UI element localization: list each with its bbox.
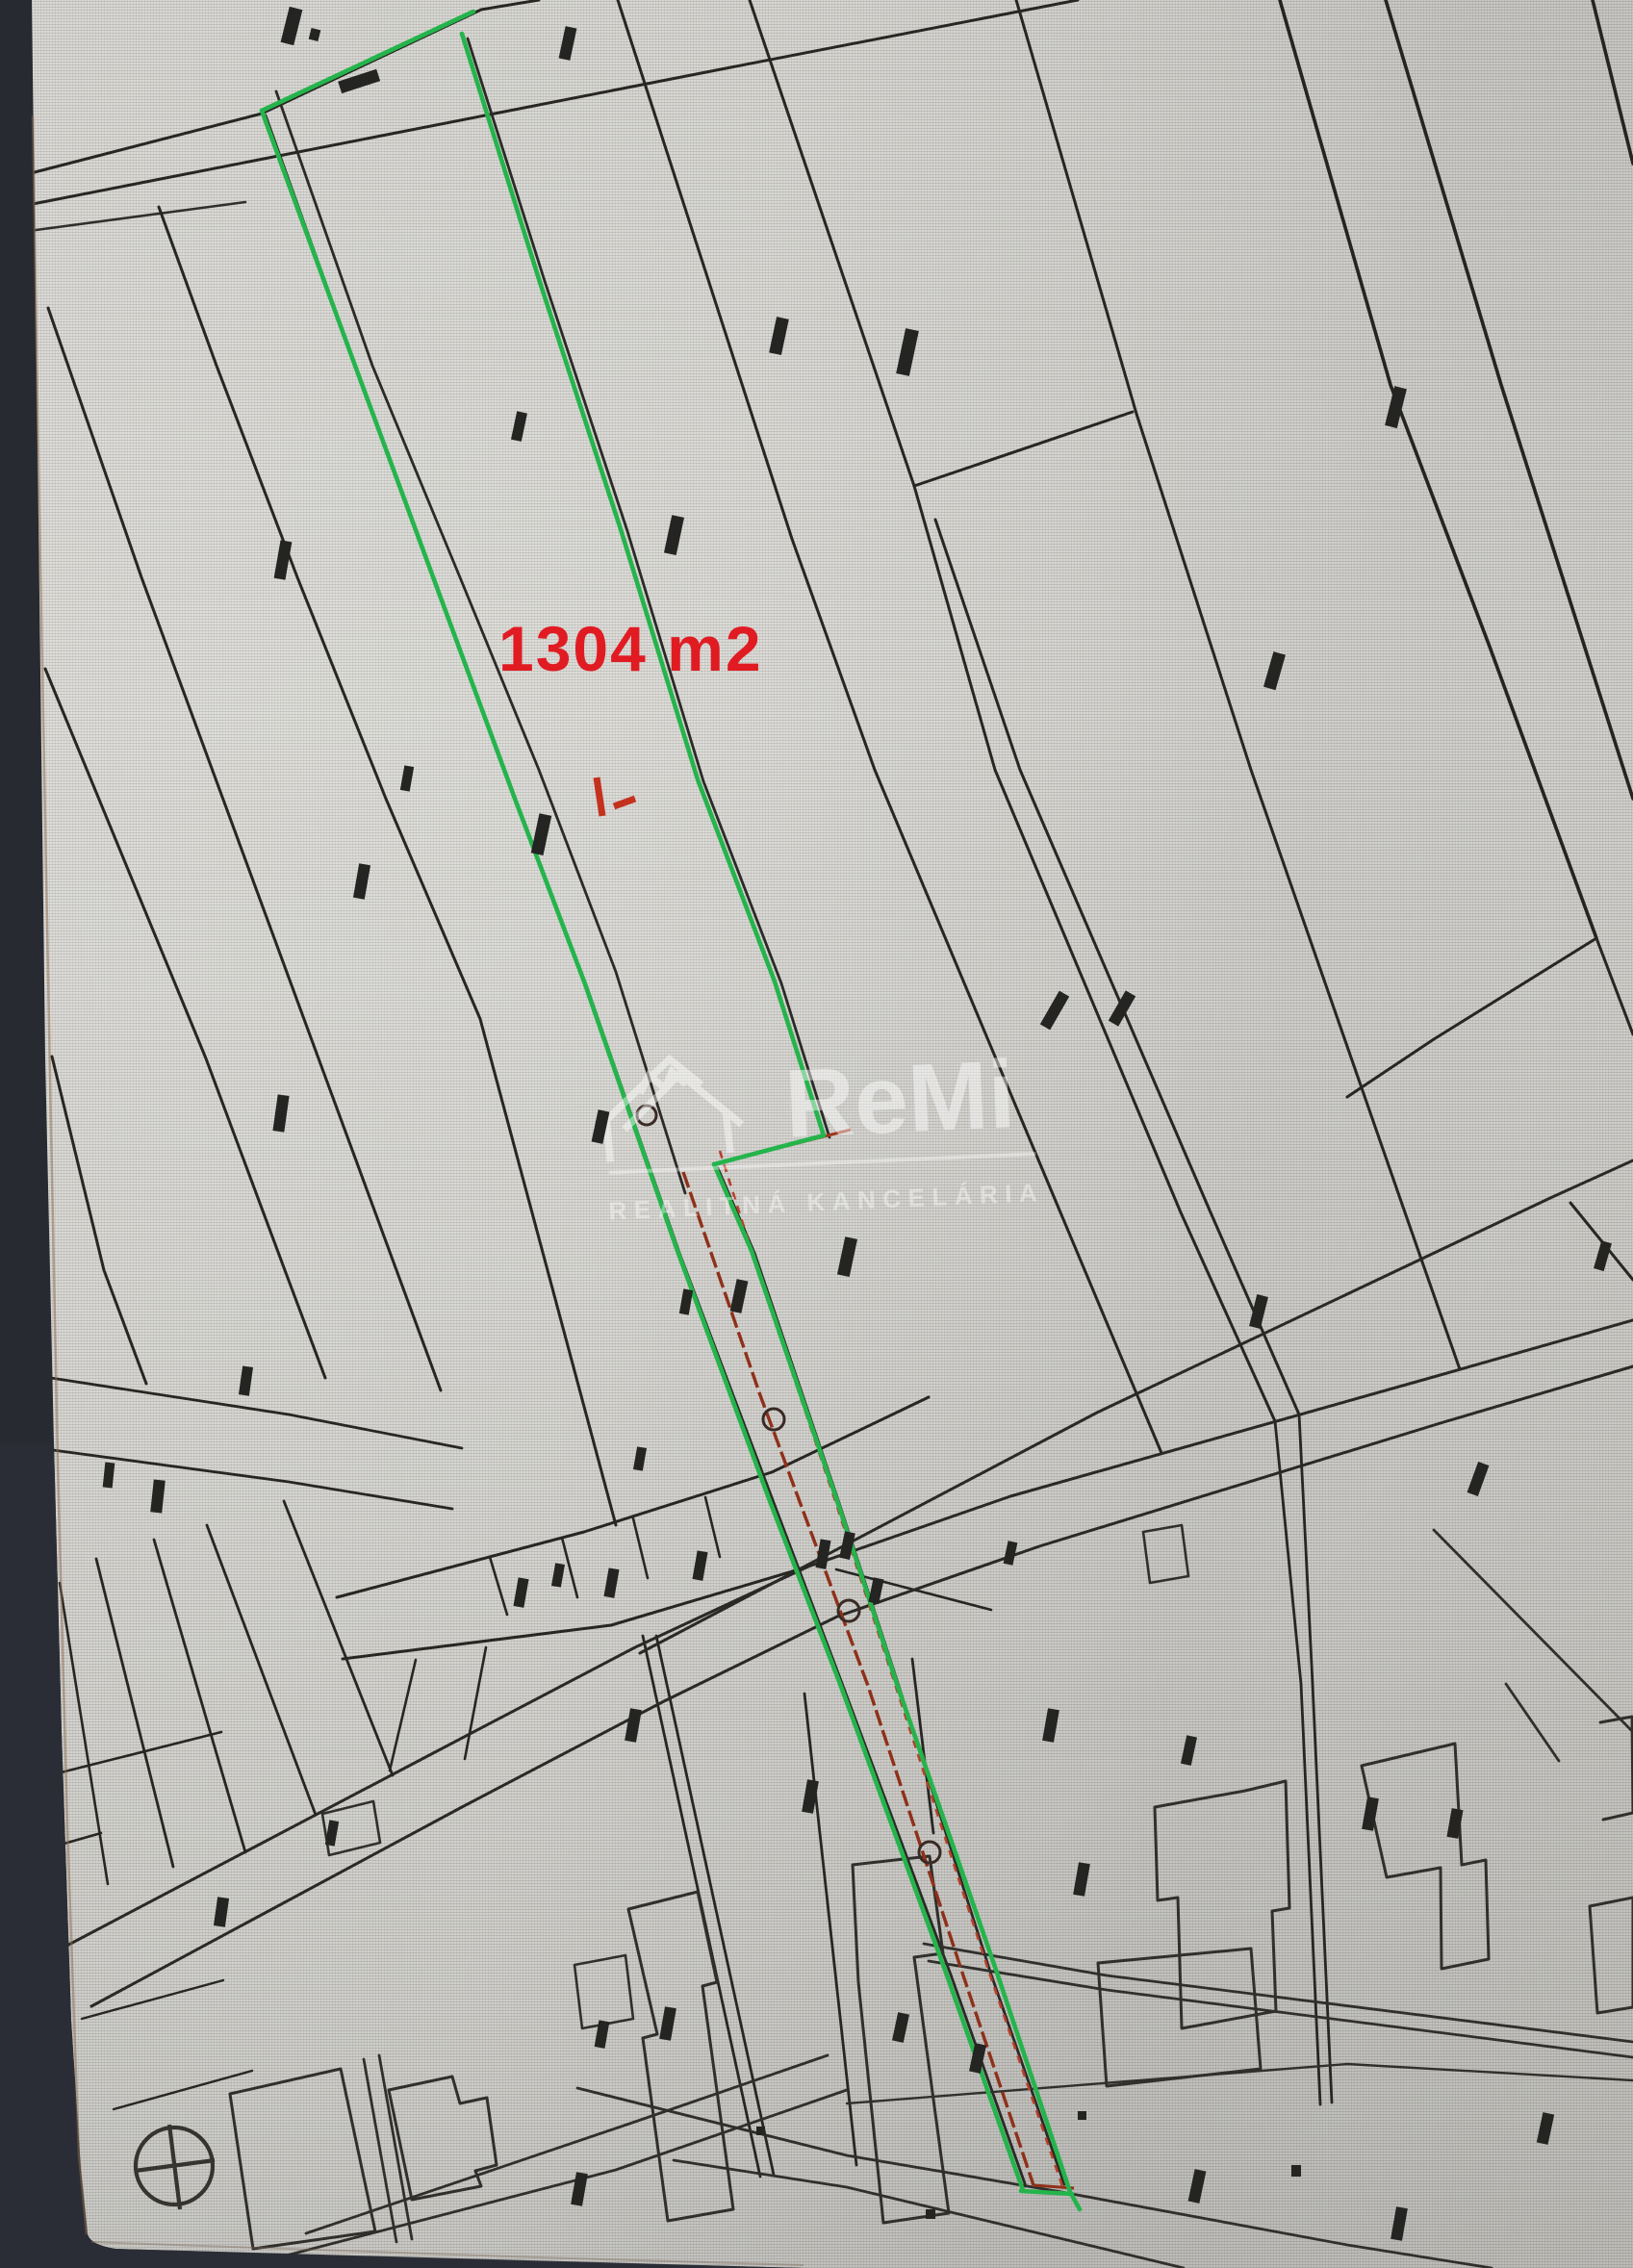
svg-text:1304 m2: 1304 m2 <box>498 613 763 684</box>
svg-text:REALITNÁ KANCELÁRIA: REALITNÁ KANCELÁRIA <box>608 1178 1045 1226</box>
svg-text:ReMi: ReMi <box>782 1040 1017 1158</box>
